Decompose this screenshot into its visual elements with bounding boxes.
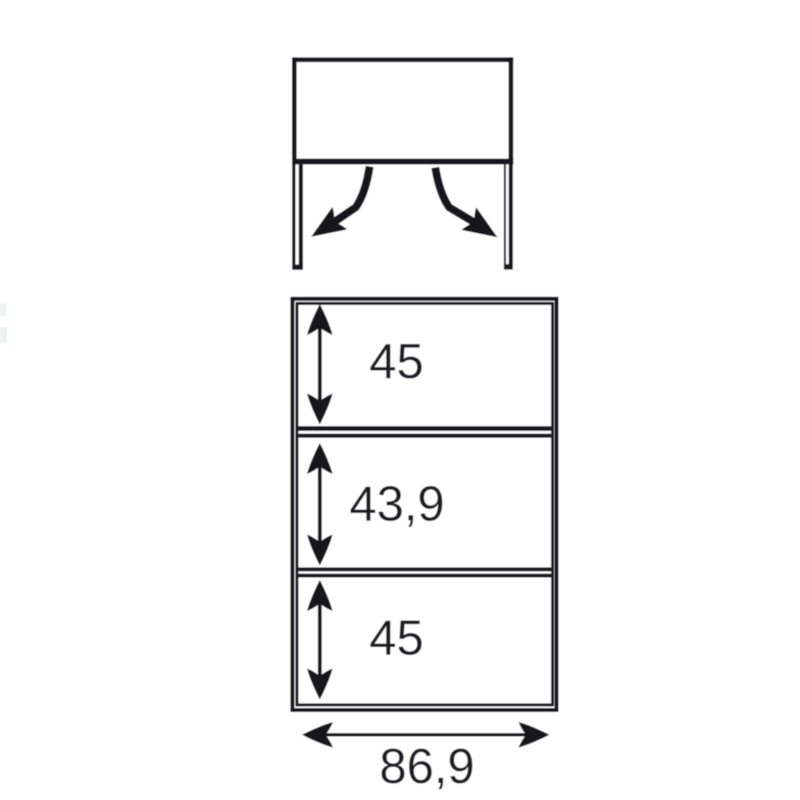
svg-text:86,9: 86,9	[379, 740, 474, 794]
svg-text:45: 45	[369, 611, 424, 665]
svg-text:45: 45	[369, 335, 424, 389]
svg-text:43,9: 43,9	[349, 477, 444, 531]
